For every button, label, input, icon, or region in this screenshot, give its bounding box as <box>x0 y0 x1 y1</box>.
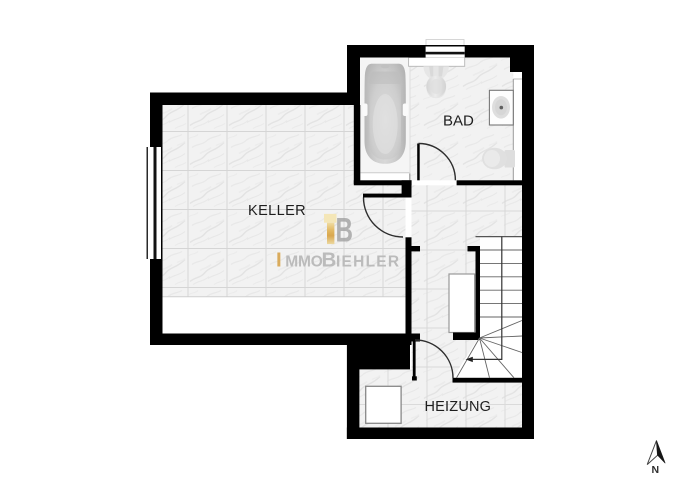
svg-text:B: B <box>322 249 337 272</box>
svg-text:N: N <box>652 464 660 476</box>
svg-text:BAD: BAD <box>443 112 474 129</box>
svg-text:IEHLER: IEHLER <box>336 254 400 271</box>
svg-text:I: I <box>276 249 282 272</box>
svg-text:B: B <box>336 212 354 250</box>
svg-text:KELLER: KELLER <box>248 203 306 219</box>
svg-text:HEIZUNG: HEIZUNG <box>425 399 492 415</box>
svg-text:MMO: MMO <box>285 254 322 271</box>
